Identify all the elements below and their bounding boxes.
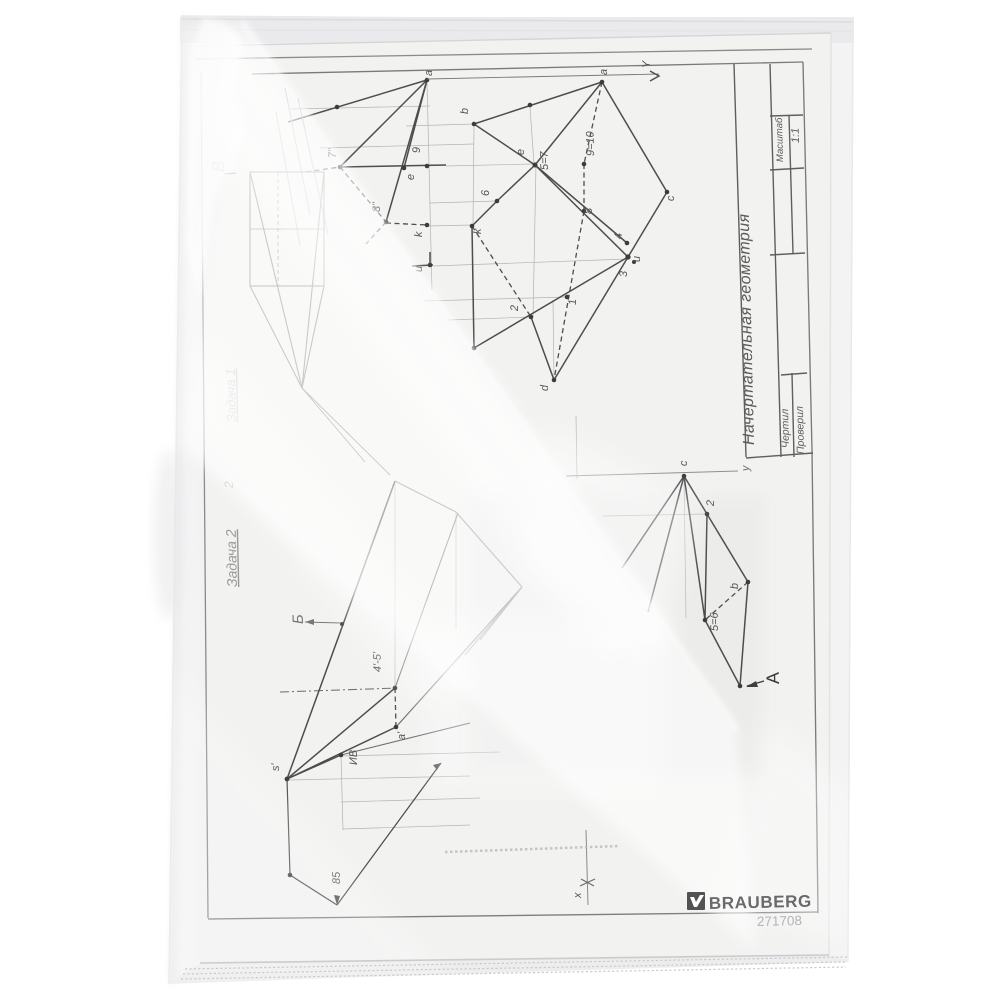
svg-text:2: 2 — [509, 305, 521, 312]
svg-text:a: a — [423, 70, 435, 76]
svg-text:1:1: 1:1 — [790, 128, 802, 144]
svg-text:5=7: 5=7 — [539, 150, 551, 170]
svg-text:u: u — [631, 256, 643, 262]
svg-text:Чертил: Чертил — [779, 409, 792, 449]
svg-text:x: x — [572, 892, 584, 899]
svg-text:271708: 271708 — [757, 913, 802, 929]
svg-text:a': a' — [396, 731, 408, 740]
svg-text:A: A — [763, 672, 783, 684]
svg-text:Y: Y — [641, 60, 653, 68]
svg-text:e: e — [515, 149, 527, 155]
svg-text:9: 9 — [411, 147, 423, 153]
svg-text:5=6: 5=6 — [709, 611, 721, 631]
svg-text:Б: Б — [290, 614, 307, 624]
svg-text:ИВ: ИВ — [348, 750, 360, 765]
svg-text:9=10: 9=10 — [584, 130, 597, 156]
svg-text:e: e — [405, 174, 417, 180]
svg-text:4: 4 — [613, 233, 625, 239]
svg-text:1: 1 — [567, 299, 579, 305]
svg-text:Масштаб: Масштаб — [774, 117, 786, 162]
svg-text:2: 2 — [705, 500, 717, 507]
svg-text:s': s' — [270, 762, 282, 771]
svg-text:BRAUBERG: BRAUBERG — [709, 892, 812, 913]
svg-text:c: c — [678, 460, 690, 466]
svg-text:Проверил: Проверил — [794, 406, 807, 454]
svg-text:c: c — [665, 195, 677, 201]
svg-text:Задача 2: Задача 2 — [223, 529, 240, 587]
svg-text:k: k — [413, 231, 425, 237]
svg-text:b: b — [729, 583, 741, 589]
svg-text:b: b — [459, 108, 471, 114]
svg-text:a: a — [598, 69, 610, 75]
svg-text:k: k — [472, 228, 484, 234]
